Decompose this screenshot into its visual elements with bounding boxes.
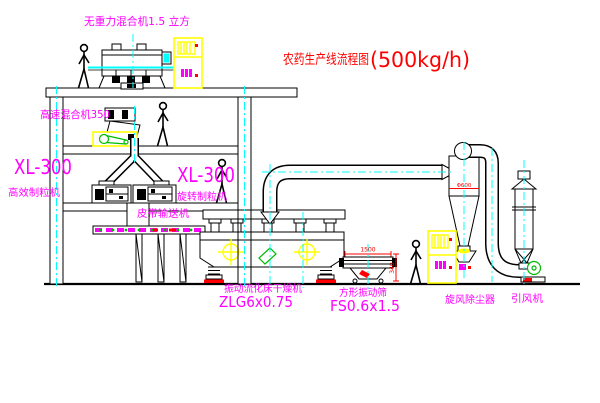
gravity-free-mixer [88,44,174,89]
dim-cyclone-diameter: Φ600 [457,183,472,189]
cad-flow-diagram: 无重力混合机1.5 立方 高速混合机350 XL-300 高效制粒机 XL-30… [0,0,600,403]
label-fan: 引风机 [511,292,543,305]
person-figure [411,241,422,284]
label-granulator-left-model: XL-300 [14,155,72,179]
label-gravity-mixer: 无重力混合机1.5 立方 [84,14,190,28]
dim-screen-length: 1500 [360,247,375,254]
granulator-left [92,185,131,203]
diagram-canvas: 无重力混合机1.5 立方 高速混合机350 XL-300 高效制粒机 XL-30… [0,0,600,403]
label-granulator-right-name: 旋转制粒机 [177,190,227,203]
label-dryer-model: ZLG6x0.75 [219,293,293,311]
control-cabinet-bottom [428,231,456,283]
label-granulator-right-model: XL-300 [177,163,235,187]
page-title-capacity: (500kg/h) [370,48,470,72]
dim-screen-height: 340 [389,262,396,274]
label-belt-conveyor: 皮带输送机 [137,207,189,220]
person-figure [158,103,169,146]
label-cyclone: 旋风除尘器 [445,293,495,306]
control-cabinet-top [174,38,202,88]
granulator-right [133,185,176,203]
label-granulator-left-name: 高效制粒机 [8,186,60,199]
label-high-speed-mixer: 高速混合机350 [40,108,110,121]
page-title: 农药生产线流程图 [283,52,369,68]
label-screen-model: FS0.6x1.5 [330,297,400,315]
person-figure [79,45,90,88]
